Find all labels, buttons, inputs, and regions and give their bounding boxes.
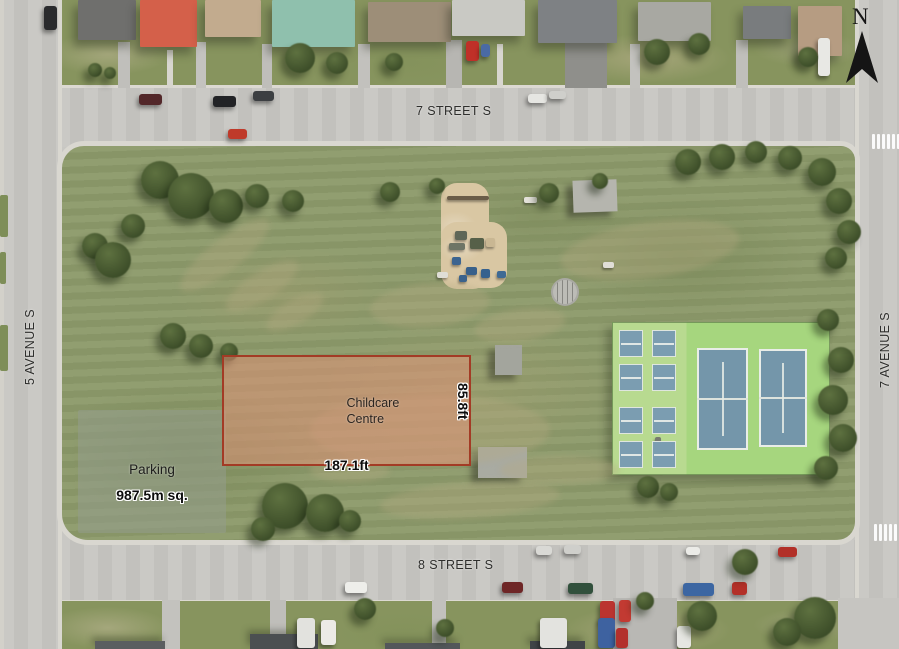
street-label-7-avenue: 7 AVENUE S [878,312,892,388]
tree [644,39,670,65]
tennis-court-1 [697,348,748,450]
vehicle [536,546,552,555]
street-label-8-street: 8 STREET S [418,558,493,572]
play-equipment [524,197,537,203]
vehicle [778,547,797,557]
tree [251,517,275,541]
vehicle [818,38,830,76]
tree [745,141,767,163]
driveway [630,44,640,88]
tree [539,183,559,203]
play-equipment [459,275,467,282]
grass-sliver [0,325,8,371]
tree [818,385,848,415]
tree [592,173,608,189]
crosswalk-bar [879,524,882,541]
driveway [262,44,272,88]
crosswalk-bar [884,524,887,541]
driveway [497,44,503,88]
play-equipment [452,257,461,265]
tree [778,146,802,170]
tree [814,456,838,480]
play-equipment [449,243,465,250]
driveway [446,40,462,88]
house-roof [368,2,451,42]
vehicle [619,600,631,622]
vehicle [549,91,566,99]
north-arrow: N [838,2,888,94]
vehicle [616,628,628,648]
tree [326,52,348,74]
site-name-line1: Childcare [347,395,400,411]
house-roof [452,0,525,36]
vehicle [598,618,615,648]
play-equipment [455,231,467,240]
play-equipment [481,269,490,278]
parking-label: Parking [78,462,226,477]
house-roof [205,0,261,37]
driveway [118,42,130,88]
tree [798,47,818,67]
vehicle [683,583,714,596]
tree [168,173,214,219]
childcare-site-overlay: ChildcareCentre 187.1ft 85.8ft [222,355,471,466]
vehicle [528,94,547,103]
crosswalk-bar [892,134,895,149]
vehicle [345,582,367,593]
play-equipment [470,238,484,249]
grass-sliver [0,195,8,237]
tree [436,619,454,637]
tree [817,309,839,331]
utility-circle-pad [553,280,577,304]
vehicle [466,41,479,61]
tree [429,178,445,194]
tree [732,549,758,575]
tree [773,618,801,646]
road-corner-southeast [838,598,899,649]
parking-area-label: 987.5m sq. [78,487,226,503]
tree [282,190,304,212]
driveway [736,40,748,88]
pickleball-court [652,441,676,468]
crosswalk-bar [877,134,880,149]
tree [339,510,361,532]
vehicle [321,620,336,645]
pickleball-court [619,407,643,434]
driveway [167,50,173,88]
house-roof [78,0,136,40]
pickleball-court [619,364,643,391]
park-shed [495,345,522,375]
pickleball-court [652,407,676,434]
tree [380,182,400,202]
pickleball-court [652,364,676,391]
house-roof [140,0,197,47]
driveway [358,44,370,88]
vehicle [139,94,162,105]
play-equipment [466,267,477,275]
tree [688,33,710,55]
vehicle [297,618,315,648]
street-label-7-street: 7 STREET S [416,104,491,118]
crosswalk-bar [882,134,885,149]
tree [121,214,145,238]
crosswalk-bar [872,134,875,149]
street-label-5-avenue: 5 AVENUE S [23,309,37,385]
play-equipment [497,271,506,278]
tree [245,184,269,208]
play-equipment [447,196,489,200]
vehicle [502,582,523,593]
tree [687,601,717,631]
crosswalk-bar [889,524,892,541]
driveway [196,42,206,88]
tree [209,189,243,223]
north-label: N [852,4,869,30]
aerial-map: Parking 987.5m sq. ChildcareCentre 187.1… [0,0,899,649]
tree [189,334,213,358]
pickleball-court [652,330,676,357]
tree [675,149,701,175]
worn-path [500,456,620,484]
vehicle [732,582,747,595]
vehicle [213,96,236,107]
house-roof [538,0,617,43]
tree [385,53,403,71]
tree [808,158,836,186]
site-name-line2: Centre [347,411,385,427]
road-7-avenue [855,0,899,649]
grass-sliver [0,252,6,284]
tennis-court-2 [759,349,807,447]
house-roof [743,6,791,39]
tree [826,188,852,214]
vehicle [481,44,490,57]
tree [837,220,861,244]
tree [354,598,376,620]
play-equipment [603,262,614,268]
pickleball-court [619,441,643,468]
parking-overlay: Parking 987.5m sq. [78,410,226,533]
tree [829,424,857,452]
vehicle [228,129,247,139]
north-arrow-icon [840,31,884,83]
vehicle [540,618,567,648]
tree [88,63,102,77]
house-roof [95,641,165,649]
tree [709,144,735,170]
crosswalk-bar [887,134,890,149]
tree [160,323,186,349]
vehicle [677,626,691,648]
site-width-dimension: 187.1ft [324,457,368,473]
driveway [565,36,607,88]
play-equipment [486,238,495,247]
crosswalk-bar [874,524,877,541]
house-roof [385,643,460,649]
site-name-label: ChildcareCentre [224,395,469,411]
tree [104,67,116,79]
playground-sand [441,222,507,288]
vehicle [44,6,57,30]
tree [306,494,344,532]
vehicle [253,91,274,101]
tree [637,476,659,498]
crosswalk-bar [894,524,897,541]
house-roof [272,0,355,47]
vehicle [568,583,593,594]
tree [285,43,315,73]
vehicle [564,545,581,554]
tree [95,242,131,278]
tree [660,483,678,501]
site-depth-dimension: 85.8ft [455,383,471,420]
pickleball-court [619,330,643,357]
vehicle [686,547,700,555]
tree [636,592,654,610]
tree [825,247,847,269]
tree [828,347,854,373]
play-equipment [437,272,448,278]
